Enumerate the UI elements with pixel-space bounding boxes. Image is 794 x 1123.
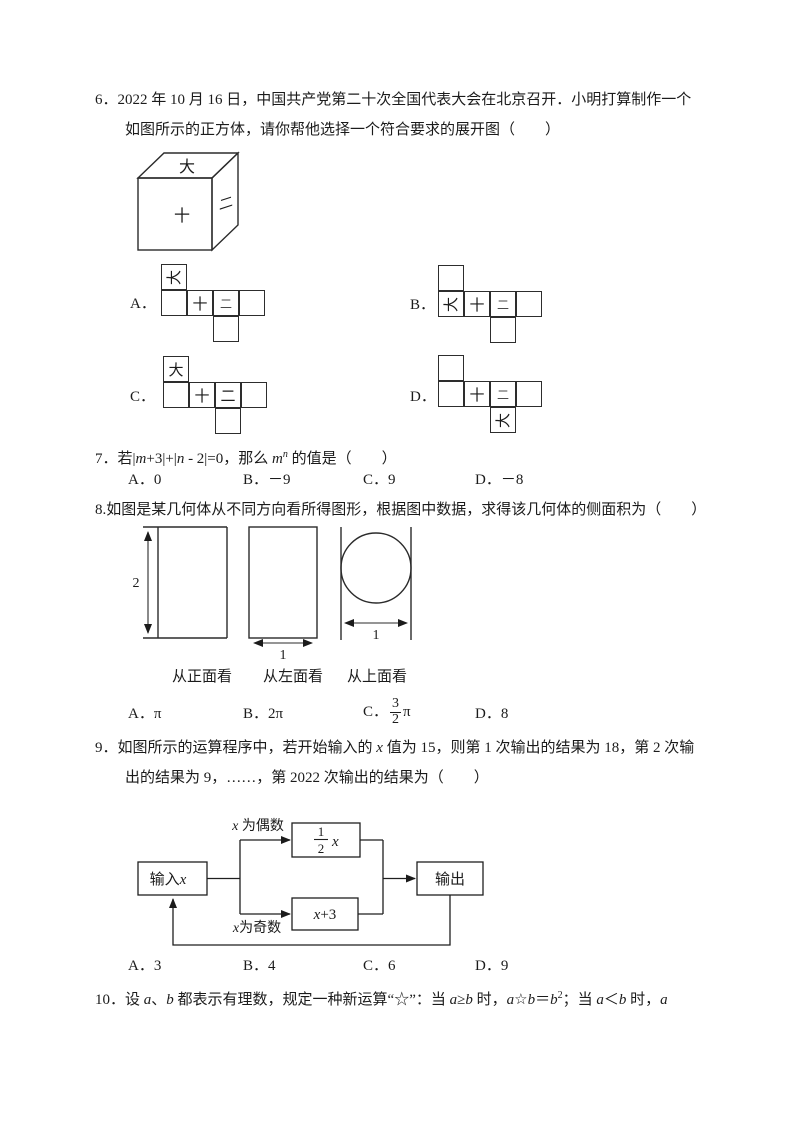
front-view-dim: 2	[133, 576, 140, 591]
q6-option-c-letter: C．	[130, 388, 155, 407]
even-condition-label: x 为偶数	[231, 818, 284, 834]
q9-option-a: A．3	[128, 957, 161, 976]
q7-option-d: D．－8	[475, 471, 523, 490]
q8-option-a: A．π	[128, 705, 161, 724]
net-cell	[516, 291, 542, 317]
q6-option-a-letter: A．	[130, 295, 156, 314]
net-char: 十	[469, 384, 484, 405]
question-9-number: 9．	[95, 740, 118, 756]
net-char: 大	[440, 296, 461, 311]
net-cell: 十	[464, 291, 490, 317]
q8-option-c: C．32π	[363, 693, 411, 731]
net-char: 十	[194, 385, 209, 406]
net-cell: 二	[490, 381, 516, 407]
var-a: a	[596, 992, 604, 1008]
net-char: 大	[163, 269, 184, 284]
output-box-label: 输出	[435, 871, 465, 888]
fraction: 32	[390, 697, 401, 727]
cube-figure: 大 十 二	[130, 148, 250, 260]
left-view-outline	[249, 527, 317, 638]
var-b: b	[528, 992, 536, 1008]
net-char: 二	[497, 296, 509, 313]
net-cell	[516, 381, 542, 407]
var-b: b	[550, 992, 558, 1008]
half-numerator: 1	[318, 824, 325, 839]
question-9-line-1: 9．如图所示的运算程序中，若开始输入的 x 值为 15，则第 1 次输出的结果为…	[95, 739, 694, 758]
net-cell: 大	[163, 356, 189, 382]
exam-page: 6．2022 年 10 月 16 日，中国共产党第二十次全国代表大会在北京召开．…	[0, 0, 794, 1123]
q7-option-c: C．9	[363, 471, 396, 490]
question-8-line: 8.如图是某几何体从不同方向看所得图形，根据图中数据，求得该几何体的侧面积为（ …	[95, 501, 706, 520]
net-cell	[490, 317, 516, 343]
question-9-line-2: 出的结果为 9，……，第 2022 次输出的结果为（ ）	[125, 769, 489, 788]
question-10-line: 10．设 a、b 都表示有理数，规定一种新运算“☆”：当 a≥b 时，a☆b＝b…	[95, 986, 668, 1010]
net-cell: 十	[464, 381, 490, 407]
net-char: 二	[220, 295, 232, 312]
net-cell	[438, 265, 464, 291]
net-char: 十	[192, 293, 207, 314]
cube-top-char: 大	[179, 158, 195, 176]
left-view-caption: 从左面看	[263, 668, 323, 685]
net-cell: 二	[213, 290, 239, 316]
three-views-figure: 2 1 1 从正面看 从左面看 从上面看	[120, 520, 440, 695]
odd-condition-label: x为奇数	[232, 919, 281, 936]
var-m: m	[136, 451, 147, 467]
question-7-line: 7．若|m+3|+|n - 2|=0，那么 mn 的值是（ ）	[95, 445, 397, 469]
net-char: 二	[497, 386, 509, 403]
question-6-text: 2022 年 10 月 16 日，中国共产党第二十次全国代表大会在北京召开．小明…	[118, 92, 692, 108]
net-cell: 二	[490, 291, 516, 317]
join-lines	[358, 840, 383, 914]
net-cell	[213, 316, 239, 342]
var-x: x	[376, 740, 383, 756]
net-cell: 十	[189, 382, 215, 408]
var-a: a	[660, 992, 668, 1008]
net-cell	[215, 408, 241, 434]
q9-option-b: B．4	[243, 957, 276, 976]
q9-option-d: D．9	[475, 957, 508, 976]
branch-lines	[207, 840, 240, 914]
net-char: 二	[220, 385, 235, 406]
q8-option-d: D．8	[475, 705, 508, 724]
net-cell	[161, 290, 187, 316]
net-cell: 十	[187, 290, 213, 316]
var-b: b	[166, 992, 174, 1008]
cube-side-char: 二	[219, 194, 233, 214]
question-7-number: 7．	[95, 451, 118, 467]
q8-option-b: B．2π	[243, 705, 283, 724]
half-denominator: 2	[318, 841, 325, 856]
input-box-label: 输入x	[150, 871, 187, 888]
q9-option-c: C．6	[363, 957, 396, 976]
q6-option-d-letter: D．	[410, 388, 436, 407]
half-var: x	[331, 834, 339, 850]
question-8-number: 8.	[95, 502, 106, 518]
top-view-circle	[341, 533, 411, 603]
question-6-number: 6．	[95, 92, 118, 108]
var-m: m	[272, 451, 283, 467]
feedback-loop-arrow	[173, 895, 450, 945]
net-cell	[438, 355, 464, 381]
question-10-number: 10．	[95, 992, 125, 1008]
net-cell: 大	[438, 291, 464, 317]
question-6-line-1: 6．2022 年 10 月 16 日，中国共产党第二十次全国代表大会在北京召开．…	[95, 91, 691, 110]
left-view-dim: 1	[280, 648, 287, 663]
var-a: a	[450, 992, 458, 1008]
net-char: 十	[469, 294, 484, 315]
q7-option-a: A．0	[128, 471, 161, 490]
var-b: b	[465, 992, 473, 1008]
front-view-outline	[143, 527, 227, 638]
net-cell	[438, 381, 464, 407]
cube-front-char: 十	[174, 207, 190, 225]
net-cell	[241, 382, 267, 408]
star-operator: ☆	[514, 992, 527, 1008]
flowchart-figure: 输入x x 为偶数 x为奇数 1 2 x x+3 输出	[130, 810, 502, 958]
question-6-line-2: 如图所示的正方体，请你帮他选择一个符合要求的展开图（ ）	[125, 121, 560, 140]
top-view-dim: 1	[373, 628, 380, 643]
q7-option-b: B．－9	[243, 471, 291, 490]
add-box-label: x+3	[313, 907, 337, 923]
net-char: 大	[492, 412, 513, 427]
q6-option-b-letter: B．	[410, 296, 435, 315]
var-a: a	[507, 992, 515, 1008]
front-view-caption: 从正面看	[172, 668, 232, 685]
top-view-caption: 从上面看	[347, 668, 407, 685]
net-char: 大	[168, 359, 183, 380]
net-cell: 大	[490, 407, 516, 433]
net-cell	[239, 290, 265, 316]
net-cell: 大	[161, 264, 187, 290]
net-cell: 二	[215, 382, 241, 408]
net-cell	[163, 382, 189, 408]
